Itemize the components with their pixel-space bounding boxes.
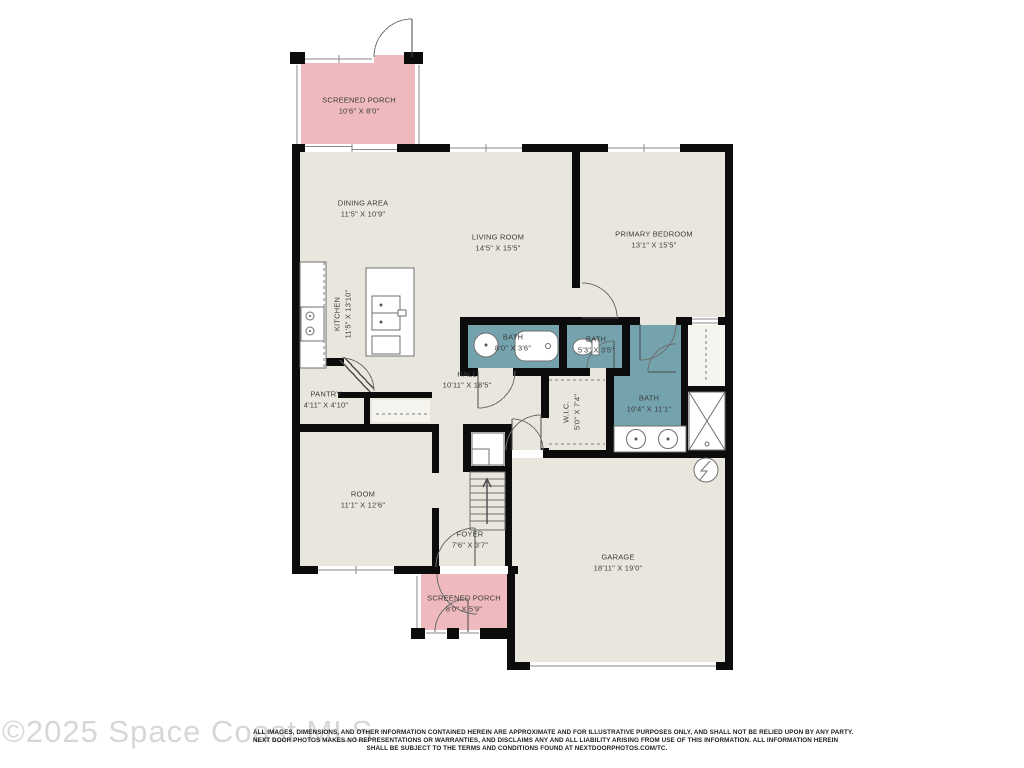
disclaimer-line-3: SHALL BE SUBJECT TO THE TERMS AND CONDIT… [253, 745, 781, 753]
disclaimer-line-1: ALL IMAGES, DIMENSIONS, AND OTHER INFORM… [253, 729, 781, 737]
dining-slider-door [305, 144, 397, 152]
disclaimer-line-2: NEXT DOOR PHOTOS MAKES NO REPRESENTATION… [253, 737, 781, 745]
double-vanity [614, 426, 686, 452]
kitchen-counter [300, 262, 326, 368]
label-screened-porch-top: SCREENED PORCH 10'6" X 8'0" [322, 96, 396, 117]
disclaimer-text: ALL IMAGES, DIMENSIONS, AND OTHER INFORM… [253, 729, 781, 754]
label-bath-2: BATH 5'3" X 3'5" [578, 335, 614, 356]
bedroom-closet-opening [692, 317, 718, 325]
porch-top-door [374, 19, 412, 57]
label-kitchen: KITCHEN 11'5" X 13'10" [333, 290, 354, 339]
kitchen-island [366, 268, 414, 356]
label-dining-area: DINING AREA 11'5" X 10'9" [338, 199, 389, 220]
room-window [318, 566, 394, 574]
living-room-window [450, 144, 522, 152]
stair-closet [472, 433, 504, 465]
label-garage: GARAGE 18'11" X 19'0" [594, 553, 643, 574]
label-screened-porch-bottom: SCREENED PORCH 8'0" X 5'9" [427, 594, 501, 615]
bedroom-closet [688, 325, 725, 386]
shower [689, 392, 725, 450]
bedroom-window [608, 144, 680, 152]
pantry-closet [372, 400, 430, 422]
label-bath-1: BATH 8'0" X 3'6" [495, 333, 531, 354]
label-living-room: LIVING ROOM 14'5" X 15'5" [472, 233, 524, 254]
label-hall: HALL 10'11" X 18'5" [443, 370, 492, 391]
floorplan-drawing [0, 0, 1024, 768]
water-heater [694, 458, 718, 482]
label-primary-bath: BATH 10'4" X 11'1" [627, 394, 671, 415]
label-pantry: PANTRY 4'11" X 4'10" [304, 390, 348, 411]
floorplan-page: SCREENED PORCH 10'6" X 8'0" DINING AREA … [0, 0, 1024, 768]
label-foyer: FOYER 7'6" X 3'7" [452, 530, 488, 551]
label-primary-bedroom: PRIMARY BEDROOM 13'1" X 15'5" [615, 230, 693, 251]
garage-door-opening [530, 662, 716, 670]
label-wic: W.I.C. 5'0" X 7'4" [562, 394, 583, 430]
label-room: ROOM 11'1" X 12'6" [341, 490, 385, 511]
